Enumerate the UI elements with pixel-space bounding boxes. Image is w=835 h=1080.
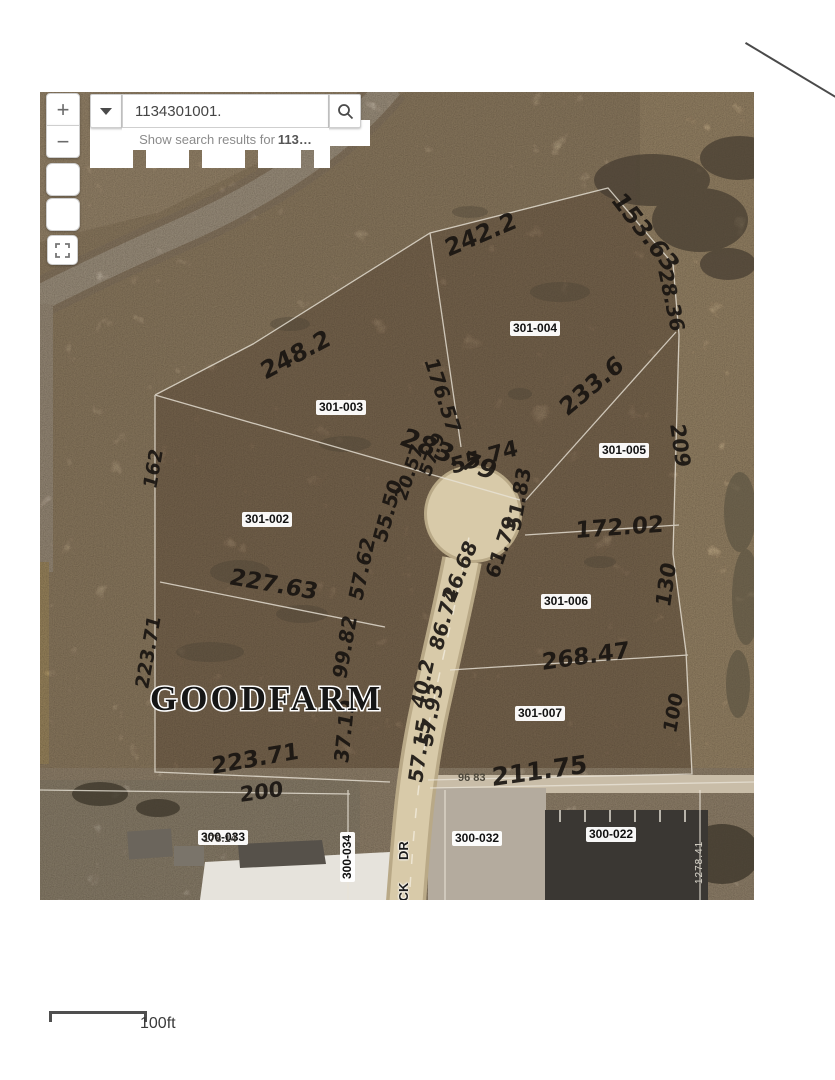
parcel-label-301-004: 301-004 <box>510 321 560 336</box>
parcel-label-300-034: 300-034 <box>340 832 355 882</box>
suggestion-term: 113… <box>278 132 312 147</box>
search-suggestion[interactable]: Show search results for 113… <box>122 128 329 150</box>
printed-dimension: 178.14 <box>203 833 237 845</box>
fullscreen-button[interactable] <box>47 235 78 265</box>
suggestion-prefix: Show search results for <box>139 132 275 147</box>
parcel-label-301-003: 301-003 <box>316 400 366 415</box>
map-canvas[interactable]: 248.2 242.2 153.63 28.36 233.6 209 176.5… <box>40 92 754 900</box>
printed-dimension: 1278.41 <box>694 841 705 884</box>
search-button[interactable] <box>329 94 361 128</box>
street-label-dr: DR <box>396 841 411 860</box>
parcel-label-300-022: 300-022 <box>586 827 636 842</box>
scale-bar-label: 100ft <box>140 1015 176 1033</box>
search-box: ✕ <box>122 94 329 128</box>
parcel-label-301-005: 301-005 <box>599 443 649 458</box>
printed-dimension: 96 83 <box>458 772 486 784</box>
chevron-down-icon <box>100 108 112 115</box>
search-input[interactable] <box>123 102 336 121</box>
blank-tool-button-2[interactable] <box>46 198 80 231</box>
app-header: Property Viewer Grundy County, Illinois <box>0 44 835 92</box>
fullscreen-icon <box>55 243 70 258</box>
parcel-label-301-002: 301-002 <box>242 512 292 527</box>
parcel-label-301-007: 301-007 <box>515 706 565 721</box>
parcel-label-301-006: 301-006 <box>541 594 591 609</box>
property-viewer-page: Property Viewer Grundy County, Illinois <box>0 0 835 1080</box>
street-label-eck: ECK <box>396 883 411 900</box>
blank-tool-button-1[interactable] <box>46 163 80 196</box>
zoom-out-button[interactable]: − <box>46 125 80 158</box>
zoom-in-button[interactable]: + <box>46 93 80 126</box>
parcel-label-300-032: 300-032 <box>452 831 502 846</box>
aerial-photo[interactable]: 248.2 242.2 153.63 28.36 233.6 209 176.5… <box>40 92 754 900</box>
search-dropdown-button[interactable] <box>90 94 122 128</box>
scale-bar <box>49 1011 147 1014</box>
township-label: GOODFARM <box>150 679 383 718</box>
search-icon <box>337 103 354 120</box>
